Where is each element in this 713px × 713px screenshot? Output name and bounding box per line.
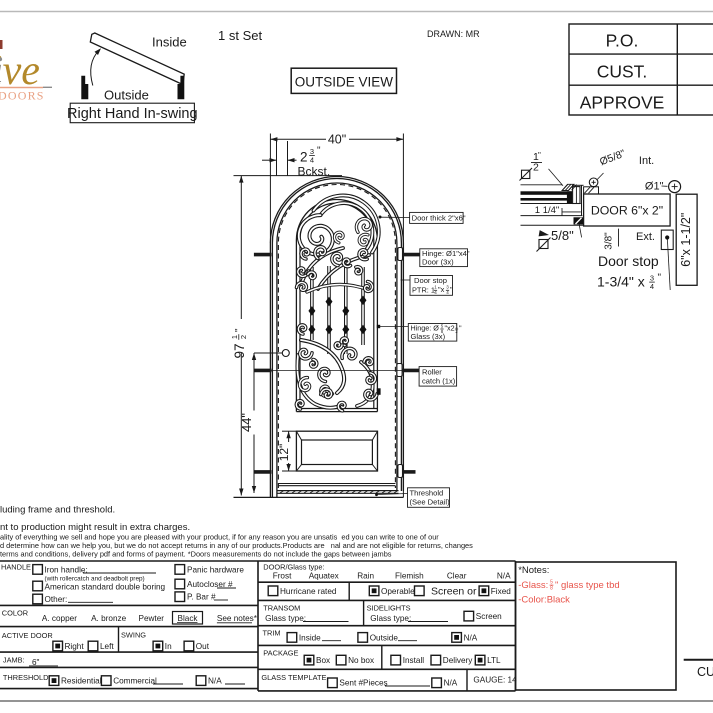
svg-text:N/A: N/A: [444, 679, 458, 688]
svg-text:5: 5: [441, 323, 444, 328]
svg-text:Glass type:: Glass type:: [265, 614, 306, 623]
svg-text:Panic hardware: Panic hardware: [187, 565, 244, 574]
svg-text:": ": [459, 324, 462, 333]
svg-text:Door stop: Door stop: [414, 276, 447, 285]
svg-text:3: 3: [650, 274, 654, 283]
svg-text:Roller: Roller: [422, 367, 442, 376]
svg-text:Hurricane rated: Hurricane rated: [280, 587, 337, 596]
svg-text:-Glass:: -Glass:: [518, 580, 548, 591]
svg-text:2: 2: [533, 162, 539, 174]
svg-text:luding frame and threshold.: luding frame and threshold.: [0, 505, 115, 516]
svg-text:Aquatex: Aquatex: [309, 571, 339, 580]
svg-text:CUST.: CUST.: [597, 62, 648, 82]
svg-text:5/8": 5/8": [551, 228, 574, 243]
svg-text:(with rollercatch and deadbolt: (with rollercatch and deadbolt prep): [45, 575, 145, 582]
svg-text:" glass type tbd: " glass type tbd: [555, 580, 620, 591]
svg-text:Commercial: Commercial: [113, 677, 157, 686]
svg-text:"x: "x: [438, 285, 445, 294]
svg-text:Inside: Inside: [152, 35, 187, 50]
svg-text:6"x 1-1/2": 6"x 1-1/2": [679, 213, 693, 267]
svg-text:(See Detail): (See Detail): [410, 498, 451, 507]
svg-text:GAUGE: 14: GAUGE: 14: [473, 676, 517, 685]
svg-text:"x2: "x2: [445, 324, 455, 333]
svg-text:COLOR: COLOR: [2, 609, 28, 618]
svg-text:P.O.: P.O.: [606, 31, 639, 51]
svg-text:12": 12": [277, 444, 291, 462]
svg-text:-Color:Black: -Color:Black: [518, 595, 570, 606]
svg-text:Install: Install: [403, 656, 425, 665]
svg-text:Pewter: Pewter: [139, 614, 165, 623]
svg-text:PACKAGE: PACKAGE: [263, 648, 298, 657]
svg-text:Threshold: Threshold: [410, 488, 444, 497]
svg-text:terms and conditions, delivery: terms and conditions, delivery pdf and f…: [0, 549, 392, 558]
svg-text:DOOR 6"x 2": DOOR 6"x 2": [591, 204, 663, 218]
svg-text:APPROVE: APPROVE: [580, 93, 665, 113]
svg-text:GLASS TEMPLATE: GLASS TEMPLATE: [261, 673, 326, 682]
svg-text:97: 97: [232, 343, 247, 358]
svg-text:3/8": 3/8": [604, 232, 615, 250]
svg-text:TRANSOM: TRANSOM: [263, 604, 300, 613]
svg-text:ACTIVE DOOR: ACTIVE DOOR: [2, 631, 53, 640]
svg-text:LTL: LTL: [487, 656, 501, 665]
svg-text:See notes*: See notes*: [217, 614, 258, 623]
svg-text:Screen: Screen: [476, 612, 502, 621]
svg-text:Right: Right: [65, 642, 85, 651]
svg-text:8: 8: [550, 586, 553, 592]
svg-text:Inside: Inside: [299, 633, 321, 642]
svg-text:SIDELIGHTS: SIDELIGHTS: [367, 604, 411, 613]
svg-text:Outside: Outside: [370, 633, 399, 642]
svg-text:HANDLE: HANDLE: [1, 563, 31, 572]
svg-text:44": 44": [239, 413, 254, 432]
svg-text:Residential: Residential: [61, 677, 102, 686]
svg-text:Frost: Frost: [273, 571, 292, 580]
svg-text:P. Bar #: P. Bar #: [187, 593, 216, 602]
svg-text:": ": [234, 328, 245, 332]
svg-text:Box: Box: [316, 656, 330, 665]
svg-text:Door (3x): Door (3x): [422, 257, 454, 266]
svg-text:": ": [658, 273, 662, 284]
svg-text:Door stop: Door stop: [598, 253, 659, 269]
svg-text:catch (1x): catch (1x): [422, 377, 456, 386]
svg-text:A. copper: A. copper: [42, 614, 77, 623]
svg-text:In: In: [165, 642, 172, 651]
svg-text:1 1/4": 1 1/4": [535, 205, 560, 216]
svg-text:CU: CU: [697, 665, 713, 679]
svg-text:Iron handle:: Iron handle:: [45, 565, 88, 574]
svg-text:": ": [538, 151, 541, 160]
svg-text:1: 1: [434, 285, 437, 290]
svg-text:Operable: Operable: [381, 587, 415, 596]
svg-text:TRIM: TRIM: [263, 629, 281, 638]
svg-text:3: 3: [310, 147, 314, 156]
svg-text:Delivery: Delivery: [443, 656, 473, 665]
svg-text:Left: Left: [100, 642, 114, 651]
svg-text:OUTSIDE VIEW: OUTSIDE VIEW: [295, 75, 394, 90]
svg-text:Bckst.: Bckst.: [298, 165, 331, 179]
svg-text:3: 3: [446, 285, 449, 290]
svg-text:Rain: Rain: [357, 571, 374, 580]
svg-text:N/A: N/A: [208, 677, 222, 686]
svg-text:Ø1": Ø1": [645, 181, 664, 193]
svg-text:nt to production might result: nt to production might result in extra c…: [0, 522, 190, 533]
svg-text:1: 1: [455, 323, 458, 328]
svg-text:THRESHOLD: THRESHOLD: [3, 673, 49, 682]
svg-text:SWING: SWING: [121, 631, 146, 640]
svg-text:4: 4: [310, 156, 314, 165]
svg-text:4: 4: [446, 290, 449, 295]
svg-text:A. bronze: A. bronze: [91, 614, 126, 623]
svg-text:Ext.: Ext.: [636, 231, 655, 243]
svg-text:40": 40": [328, 133, 346, 147]
svg-text:JAMB:: JAMB:: [3, 655, 25, 664]
svg-text:Right Hand In-swing: Right Hand In-swing: [67, 106, 198, 122]
svg-text:1: 1: [230, 335, 239, 339]
svg-text:PTR: 1: PTR: 1: [412, 285, 435, 294]
svg-text:DOOR/Glass type:: DOOR/Glass type:: [263, 563, 324, 572]
svg-text:N/A: N/A: [464, 633, 478, 642]
svg-text:4: 4: [434, 290, 437, 295]
svg-text:2: 2: [239, 335, 248, 339]
svg-text:Sent #Pieces: Sent #Pieces: [339, 679, 387, 688]
svg-text:Glass type:: Glass type:: [370, 614, 411, 623]
svg-text:Ø5/8": Ø5/8": [598, 147, 627, 168]
svg-text:Flemish: Flemish: [395, 571, 424, 580]
svg-text:DRAWN: MR: DRAWN: MR: [427, 29, 480, 39]
svg-text:i: i: [0, 50, 3, 91]
svg-text:2: 2: [455, 329, 458, 334]
svg-text:2: 2: [300, 150, 308, 165]
svg-text:No box: No box: [348, 656, 374, 665]
svg-text:Black: Black: [178, 614, 199, 623]
svg-text:4: 4: [650, 282, 654, 291]
svg-text:DOORS: DOORS: [0, 89, 45, 103]
svg-text:Other:: Other:: [45, 595, 68, 604]
svg-text:N/A: N/A: [497, 571, 511, 580]
svg-text:5: 5: [550, 580, 553, 586]
svg-text:Screen or: Screen or: [431, 586, 477, 598]
svg-text:": ": [450, 285, 453, 294]
svg-text:Glass (3x): Glass (3x): [411, 332, 446, 341]
svg-text:Outside: Outside: [104, 88, 149, 103]
svg-text:": ": [317, 146, 321, 157]
svg-text:Clear: Clear: [447, 571, 467, 580]
svg-text:*Notes:: *Notes:: [518, 565, 549, 576]
svg-text:American standard double borin: American standard double boring: [45, 583, 166, 592]
svg-text:1 st Set: 1 st Set: [218, 28, 262, 43]
svg-text:1-3/4" x: 1-3/4" x: [597, 274, 645, 290]
svg-text:Fixed: Fixed: [491, 587, 511, 596]
svg-text:Int.: Int.: [639, 155, 654, 167]
svg-text:Out: Out: [196, 642, 210, 651]
svg-text:Door thick 2"x6": Door thick 2"x6": [412, 214, 466, 223]
